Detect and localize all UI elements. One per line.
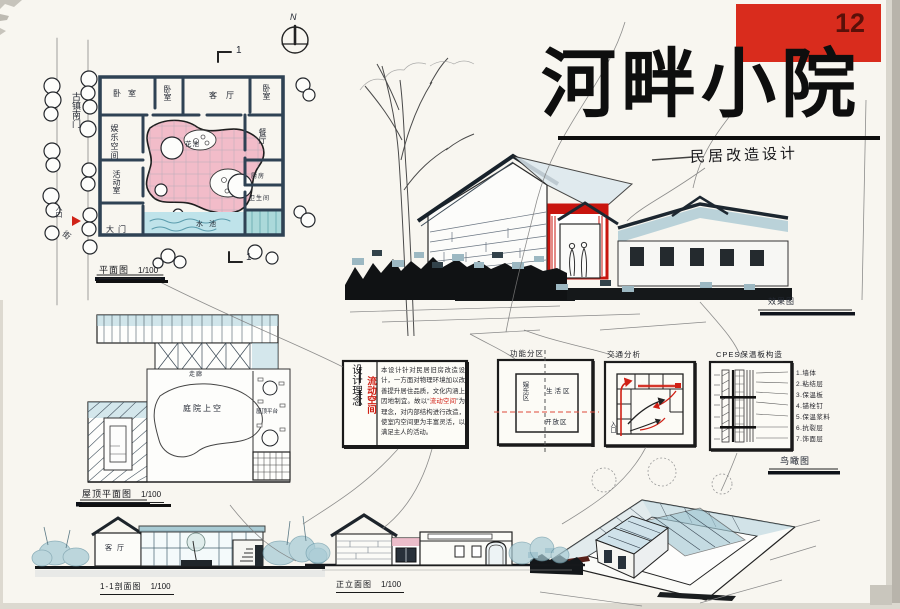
floor-plan-caption: 平面图1/100	[99, 263, 161, 279]
board-number: 12	[835, 8, 865, 39]
label-corridor: 走廊	[189, 372, 203, 378]
zoning-caption: 功能分区	[510, 348, 544, 361]
title-underline	[558, 136, 880, 140]
wall-legend-2: 2.粘结层	[796, 378, 823, 388]
room-bedroom-a: 卧室	[113, 90, 143, 98]
wall-detail-diagram	[710, 362, 793, 451]
room-kitchen: 厨房	[251, 174, 265, 180]
floor-plan-scale: 1/100	[138, 266, 158, 275]
zone-bottom-label: 开放区	[545, 420, 568, 427]
board-title: 河畔小院	[541, 47, 893, 122]
axonometric-caption: 鸟瞰图	[780, 457, 810, 466]
section-drawing	[32, 516, 327, 577]
room-living: 客厅	[209, 92, 243, 100]
zoning-diagram	[494, 350, 599, 453]
label-flower-bed: 花池	[185, 142, 200, 149]
zone-left-label: 娱乐区	[519, 381, 529, 401]
circulation-entrance-label: 入口	[607, 421, 616, 433]
north-label: N	[290, 13, 298, 22]
section-caption-text: 1-1剖面图	[100, 582, 142, 591]
elevation-scale: 1/100	[381, 580, 401, 589]
section-caption: 1-1剖面图1/100	[100, 581, 174, 595]
label-courtyard-void: 庭院上空	[183, 405, 223, 413]
zone-center-label: 生活区	[546, 389, 572, 396]
room-dining: 餐厅	[256, 128, 268, 144]
roof-plan-caption: 屋顶平面图1/100	[82, 487, 164, 503]
room-activity: 活动室	[110, 170, 122, 194]
concept-keyword-inline: 流动空间	[430, 398, 457, 405]
section-scale: 1/100	[151, 582, 171, 591]
roof-plan-caption-text: 屋顶平面图	[82, 489, 132, 499]
wall-legend-7: 7.饰面层	[796, 433, 823, 443]
wall-legend-6: 6.抗裂层	[796, 422, 823, 432]
wall-legend-4: 4.锚栓钉	[796, 400, 823, 410]
wall-detail-caption: CPES保温板构造	[716, 349, 783, 362]
section-room-label: 客厅	[105, 545, 129, 552]
roof-plan-scale: 1/100	[141, 490, 161, 499]
label-pond: 水池	[196, 221, 222, 228]
concept-keyword: 流动空间	[363, 376, 377, 414]
board-subtitle: 民居改造设计	[690, 142, 799, 167]
circulation-caption: 交通分析	[607, 349, 641, 362]
label-street: 古镇南门	[60, 92, 92, 128]
room-leisure: 娱乐空间	[107, 124, 121, 156]
section-mark-top: 1	[236, 46, 243, 56]
room-gate: 大门	[106, 226, 130, 234]
floor-plan-caption-text: 平面图	[99, 265, 129, 275]
room-bedroom-b: 卧室	[161, 85, 173, 101]
section-mark-bottom: 1	[246, 253, 253, 263]
room-bedroom-c: 卧室	[260, 84, 272, 100]
perspective-caption: 效果图	[768, 298, 795, 306]
axonometric-drawing	[528, 458, 840, 606]
floor-plan-drawing	[43, 26, 315, 305]
label-roof-terrace: 屋顶平台	[256, 410, 278, 416]
wall-legend-5: 5.保温浆料	[796, 411, 830, 421]
elevation-caption: 正立面图1/100	[336, 579, 404, 593]
concept-body: 本设计针对民居旧房改造设计，一方面对物理环境加以改善提升居住品质，文化内涵上因地…	[381, 366, 465, 439]
label-entrance: 入口	[53, 204, 64, 218]
room-bathroom: 卫生间	[249, 196, 270, 202]
circulation-diagram	[605, 362, 696, 447]
wall-legend-1: 1.墙体	[796, 367, 816, 377]
presentation-board: 12 河畔小院 民居改造设计 卧室 卧室 客厅 卧室 娱乐空间 活动室 大门 花…	[0, 0, 900, 609]
elevation-caption-text: 正立面图	[336, 580, 372, 589]
wall-legend-3: 3.保温板	[796, 389, 823, 399]
